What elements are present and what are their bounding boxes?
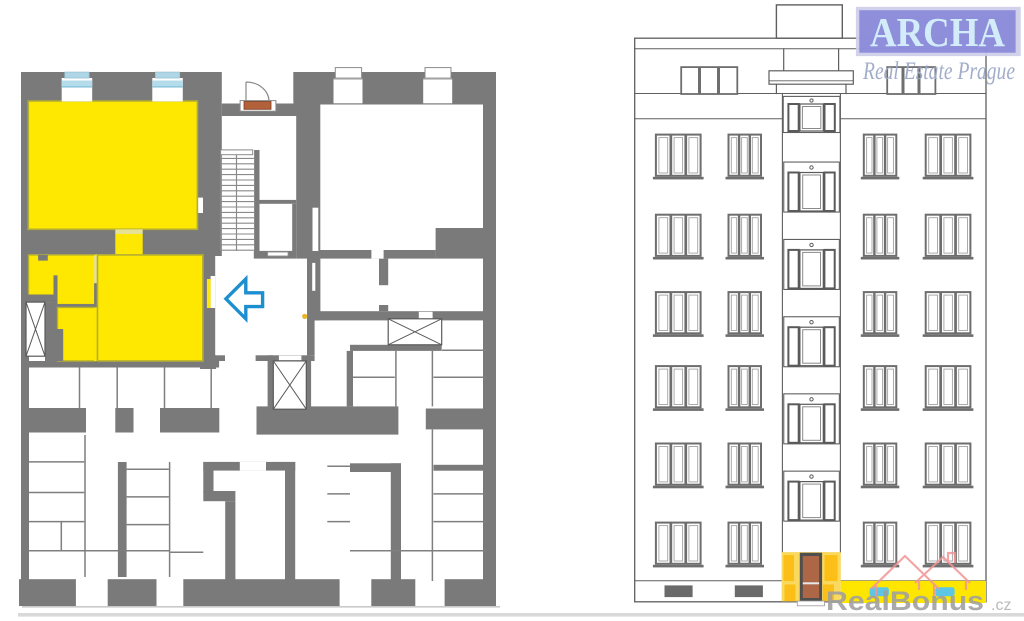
svg-text:RealBonus: RealBonus <box>826 586 984 616</box>
svg-text:.cz: .cz <box>991 597 1011 614</box>
svg-text:Real Estate Prague: Real Estate Prague <box>862 58 1015 85</box>
svg-text:ARCHA: ARCHA <box>870 9 1005 55</box>
